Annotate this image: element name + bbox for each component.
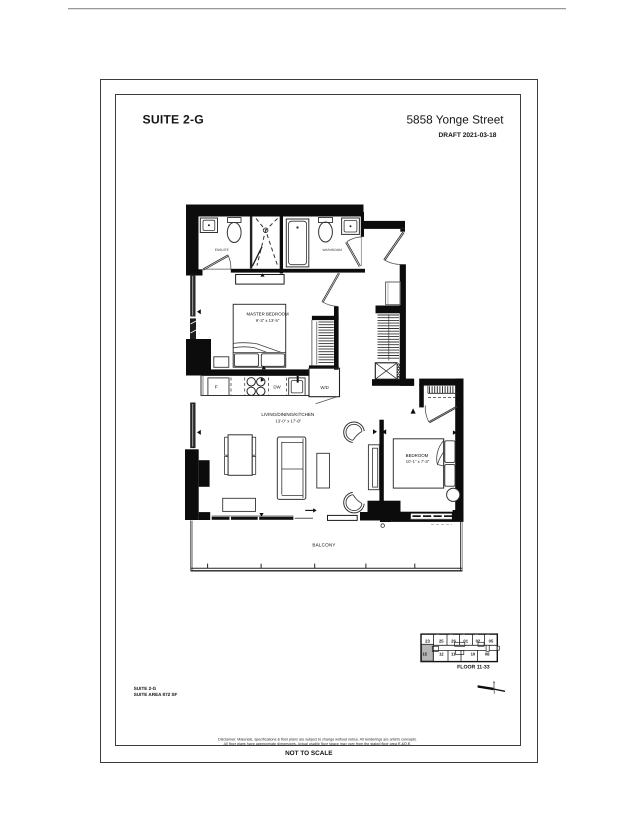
- svg-text:10: 10: [471, 652, 476, 657]
- svg-text:05: 05: [489, 638, 494, 643]
- svg-text:N: N: [493, 681, 495, 685]
- svg-text:5858 Yonge Street: 5858 Yonge Street: [406, 112, 504, 126]
- svg-text:FLOOR 11-33: FLOOR 11-33: [457, 665, 490, 671]
- svg-text:26: 26: [451, 638, 456, 643]
- svg-text:12: 12: [439, 652, 444, 657]
- svg-text:NOT TO SCALE: NOT TO SCALE: [285, 750, 333, 757]
- svg-text:W/D: W/D: [320, 385, 329, 390]
- svg-text:SUITE AREA 872 SF: SUITE AREA 872 SF: [134, 692, 178, 697]
- svg-text:BALCONY: BALCONY: [312, 543, 335, 548]
- svg-text:11: 11: [451, 652, 456, 657]
- svg-text:9'-3" x 13'-5": 9'-3" x 13'-5": [256, 318, 280, 323]
- svg-text:DW: DW: [273, 384, 281, 389]
- svg-text:02: 02: [476, 638, 481, 643]
- svg-text:13'-0" x 17'-8": 13'-0" x 17'-8": [275, 418, 301, 423]
- svg-text:All floor plans have approxima: All floor plans have approximate dimensi…: [224, 742, 412, 746]
- svg-text:BEDROOM: BEDROOM: [406, 453, 429, 458]
- svg-text:DRAFT 2021-03-18: DRAFT 2021-03-18: [439, 132, 497, 139]
- svg-text:Disclaimer: Materials, specif: Disclaimer: Materials, specifications & …: [218, 737, 417, 741]
- svg-text:10'-1" x 7'-3": 10'-1" x 7'-3": [406, 459, 430, 464]
- svg-text:08: 08: [485, 652, 490, 657]
- svg-text:SUITE 2-G: SUITE 2-G: [143, 112, 204, 126]
- svg-text:SUITE 2-G: SUITE 2-G: [134, 686, 157, 691]
- svg-text:ENSUITE: ENSUITE: [215, 248, 229, 252]
- svg-text:23: 23: [425, 638, 430, 643]
- svg-text:LIVING/DINING/KITCHEN: LIVING/DINING/KITCHEN: [261, 412, 314, 417]
- svg-text:F: F: [215, 384, 218, 389]
- svg-text:01: 01: [463, 638, 468, 643]
- svg-text:WASHROOM: WASHROOM: [323, 248, 343, 252]
- svg-text:MASTER BEDROOM: MASTER BEDROOM: [246, 312, 289, 317]
- svg-text:25: 25: [439, 638, 444, 643]
- svg-text:15: 15: [422, 652, 427, 657]
